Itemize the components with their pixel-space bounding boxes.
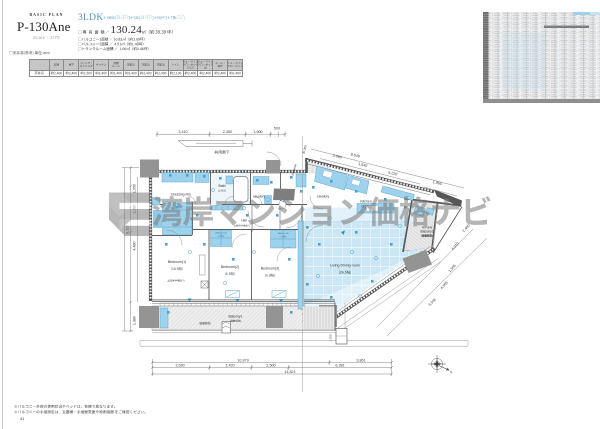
svg-text:Bath: Bath — [219, 184, 226, 188]
svg-text:1,540: 1,540 — [358, 162, 368, 168]
svg-text:2,400: 2,400 — [462, 224, 471, 234]
svg-text:10,979: 10,979 — [237, 358, 248, 362]
svg-text:5,220: 5,220 — [388, 170, 398, 176]
svg-text:Bedroom(1): Bedroom(1) — [168, 260, 186, 264]
svg-text:Dressing Rm: Dressing Rm — [171, 193, 191, 197]
svg-text:1,505: 1,505 — [448, 264, 457, 274]
svg-text:1,600: 1,600 — [253, 130, 262, 134]
svg-text:3,530: 3,530 — [175, 364, 184, 368]
svg-text:3,861: 3,861 — [356, 358, 365, 362]
svg-text:Bedroom(2): Bedroom(2) — [221, 265, 239, 269]
svg-text:1,050: 1,050 — [133, 184, 137, 193]
svg-text:N: N — [450, 371, 453, 375]
svg-text:3,346: 3,346 — [428, 298, 437, 307]
svg-text:Lavatory: Lavatory — [253, 195, 266, 199]
svg-text:6,381: 6,381 — [335, 364, 344, 368]
svg-text:2,420: 2,420 — [225, 364, 234, 368]
svg-text:Lavatory: Lavatory — [317, 195, 330, 199]
svg-text:1,350: 1,350 — [329, 334, 333, 341]
svg-text:1,960: 1,960 — [432, 180, 442, 186]
svg-text:4,010: 4,010 — [451, 242, 460, 252]
svg-text:3,410: 3,410 — [178, 130, 187, 134]
svg-text:4,965: 4,965 — [440, 281, 449, 290]
svg-text:Living Dining room: Living Dining room — [330, 264, 360, 268]
svg-text:Balcony1: Balcony1 — [229, 315, 243, 319]
svg-text:2,500: 2,500 — [266, 364, 275, 368]
svg-text:Walk-in Clo: Walk-in Clo — [277, 233, 289, 235]
svg-text:(避難経路): (避難経路) — [199, 321, 211, 325]
svg-text:8,540: 8,540 — [350, 152, 360, 158]
svg-text:Hall: Hall — [241, 219, 247, 223]
svg-text:1,980: 1,980 — [133, 316, 137, 325]
svg-text:4,480: 4,480 — [133, 241, 137, 250]
svg-text:Walk-in Clo: Walk-in Clo — [215, 233, 227, 235]
svg-text:500: 500 — [274, 127, 280, 131]
svg-text:2,060: 2,060 — [332, 153, 342, 159]
svg-text:Bedroom(3): Bedroom(3) — [261, 267, 279, 271]
svg-text:2,350: 2,350 — [223, 130, 232, 134]
svg-text:14,821: 14,821 — [284, 370, 295, 374]
svg-text:Balcony2: Balcony2 — [420, 230, 433, 234]
svg-text:Kitchen: Kitchen — [360, 200, 371, 204]
